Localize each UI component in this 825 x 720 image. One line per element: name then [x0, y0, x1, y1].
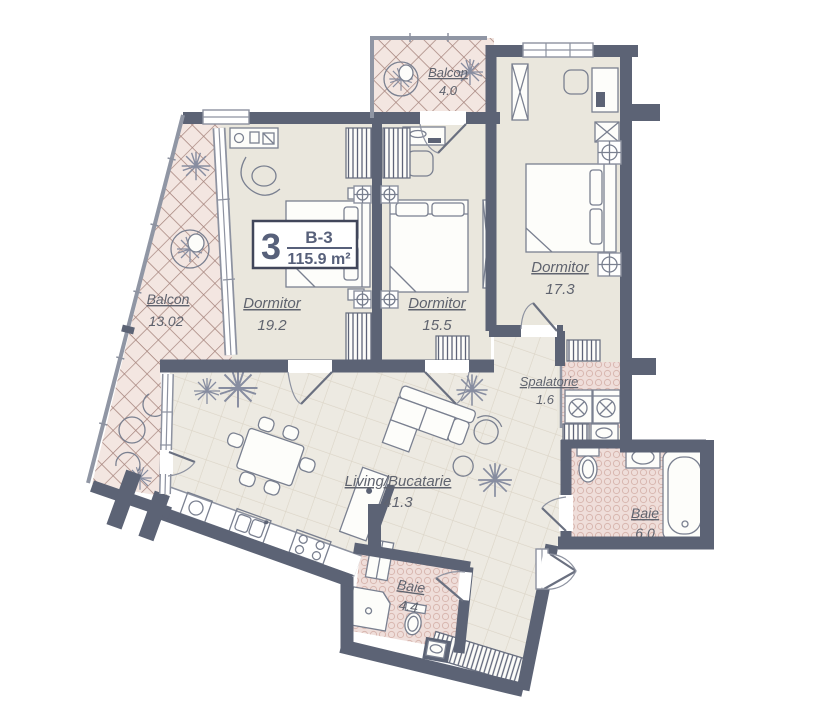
window-dormitor-19 [203, 110, 249, 124]
floor-plan: Dormitor 19.2 Dormitor 15.5 Dormitor 17.… [0, 0, 825, 720]
room-area: 19.2 [257, 317, 287, 334]
unit-area: 115.9 m² [287, 251, 350, 268]
shelf-dormitor-19 [230, 128, 278, 148]
room-name: Dormitor [408, 295, 467, 312]
bathtub [663, 451, 706, 540]
bed-dormitor-17 [526, 164, 616, 252]
unit-code: B-3 [305, 228, 332, 247]
room-name: Balcon [147, 291, 190, 307]
washing-machines [563, 390, 620, 442]
unit-number: 3 [261, 226, 281, 267]
floor-plan-svg: Dormitor 19.2 Dormitor 15.5 Dormitor 17.… [0, 0, 825, 720]
room-area: 13.02 [148, 313, 183, 329]
bed-dormitor-15 [390, 200, 468, 292]
baie-4-dark-block [422, 637, 451, 663]
entrance-door [544, 554, 576, 589]
room-name: Baie [631, 505, 659, 521]
unit-info-box: 3 B-3 115.9 m² [253, 221, 357, 268]
room-area: 17.3 [545, 281, 575, 298]
room-area: 41.3 [383, 494, 413, 511]
room-name: Spalatorie [520, 374, 579, 389]
room-name: Balcon [428, 65, 468, 80]
window-dormitor-17 [523, 43, 593, 57]
toilet-baie-6 [577, 447, 599, 482]
room-area: 4.0 [439, 83, 458, 98]
room-area: 4.4 [398, 597, 420, 616]
room-name: Living/Bucatarie [345, 473, 452, 490]
room-area: 6.0 [635, 525, 655, 541]
room-area: 15.5 [422, 317, 452, 334]
room-name: Dormitor [531, 259, 590, 276]
room-area: 1.6 [536, 392, 555, 407]
room-name: Dormitor [243, 295, 302, 312]
